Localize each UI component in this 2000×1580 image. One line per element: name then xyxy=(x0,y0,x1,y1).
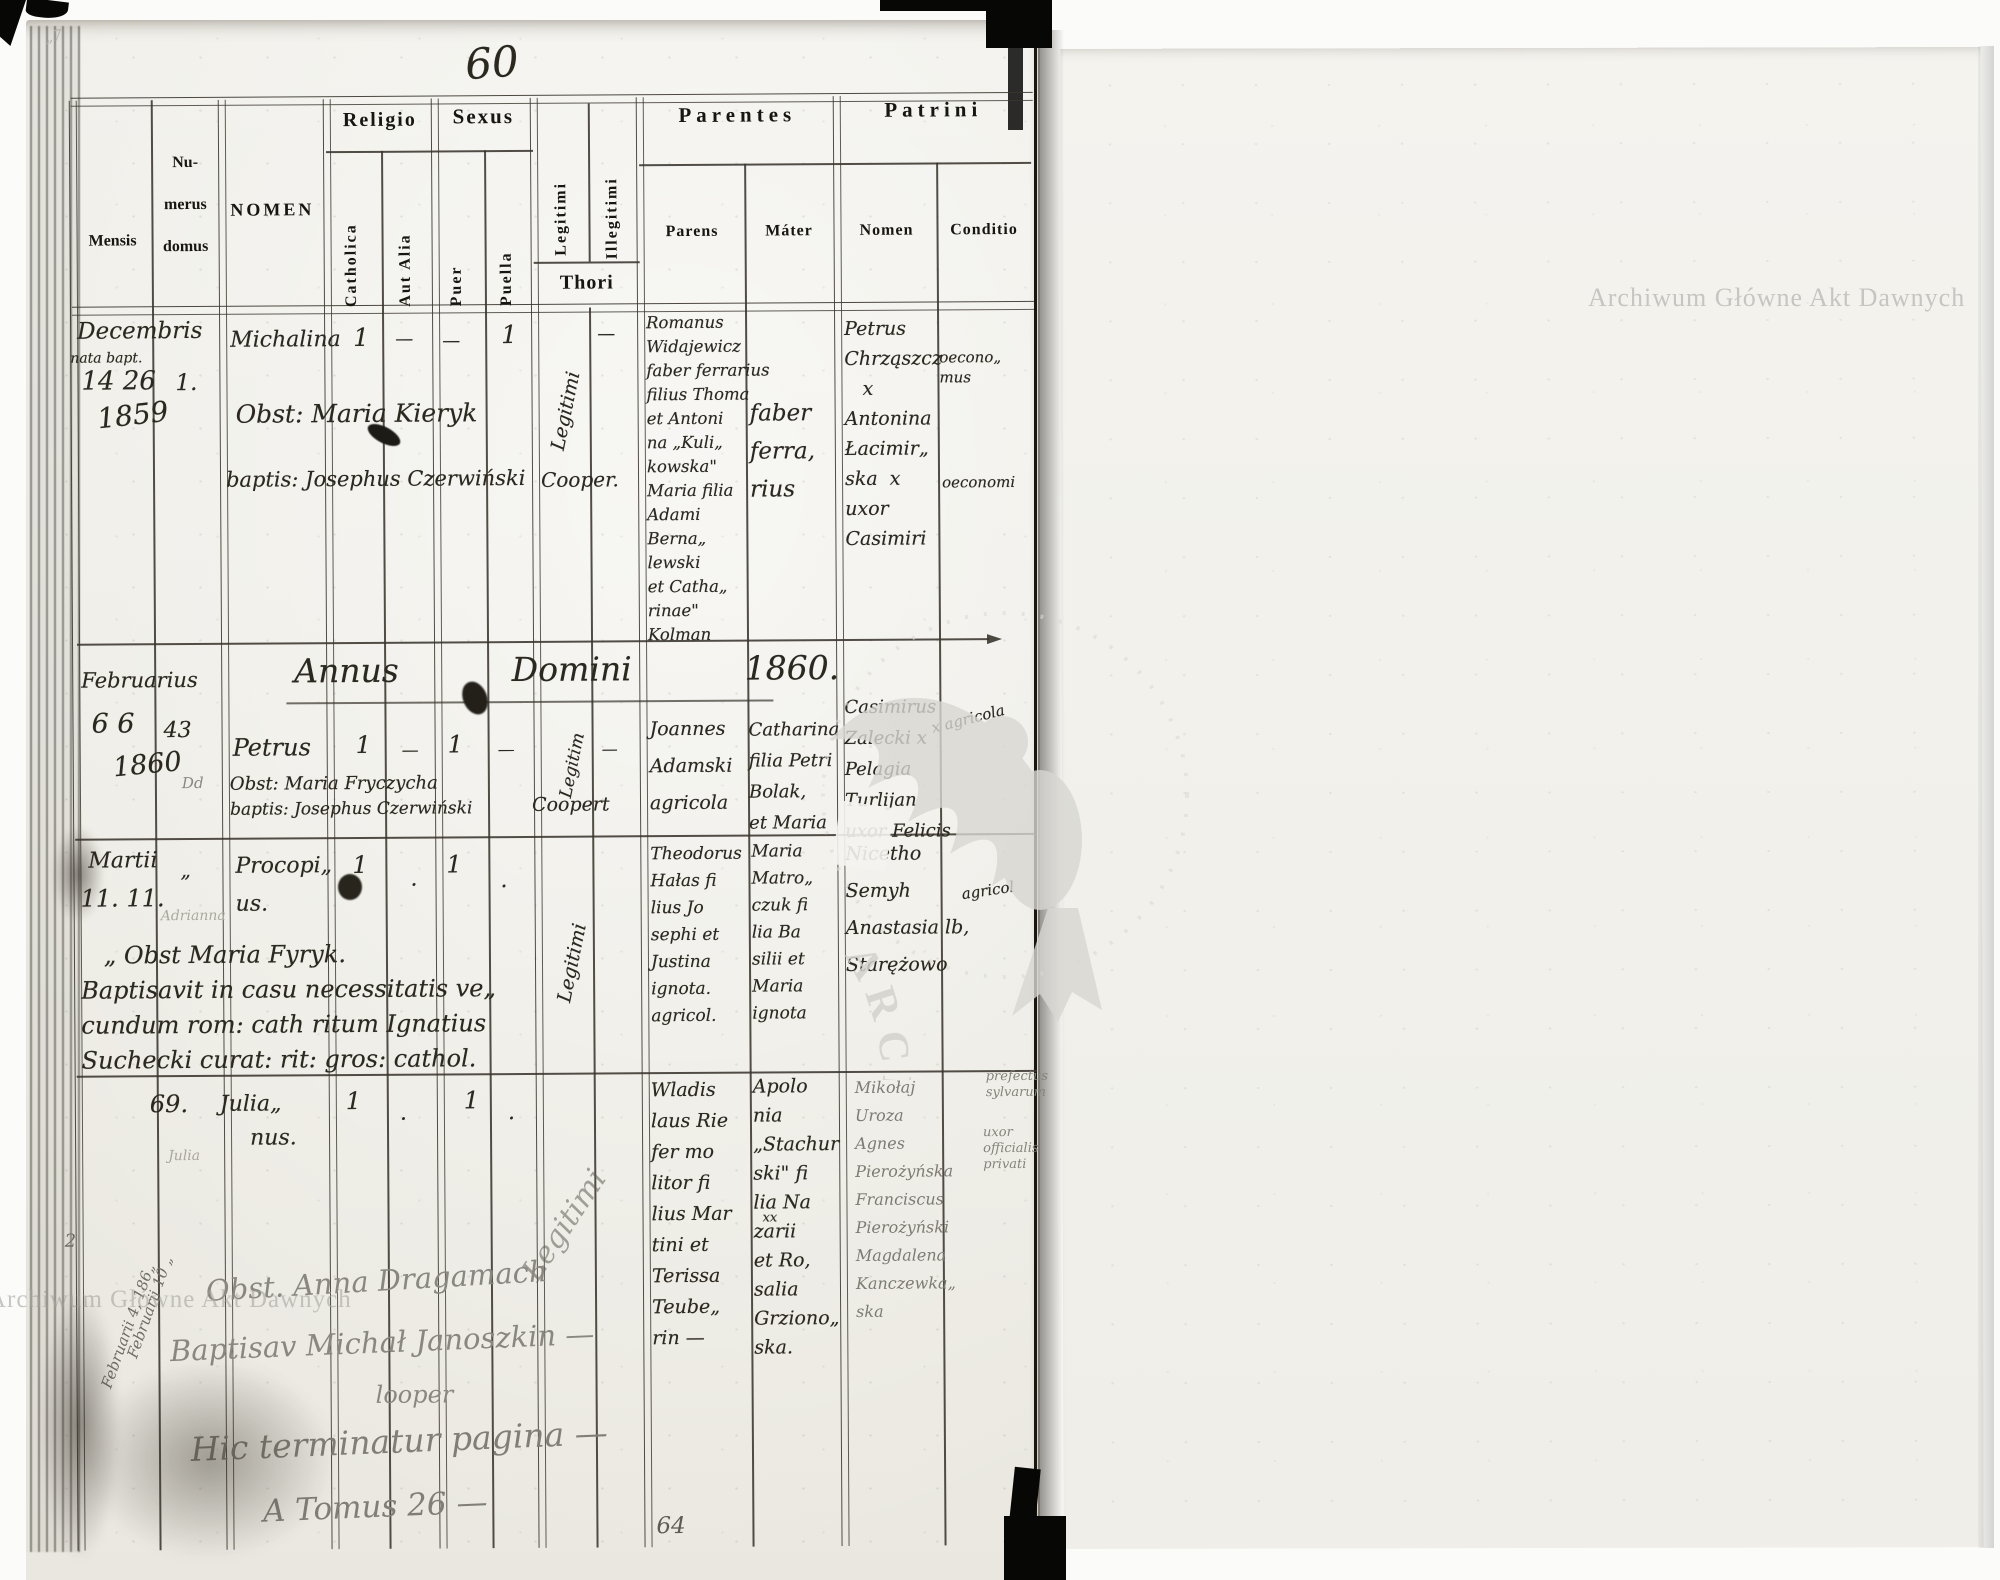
entry-parens: Wladis laus Rie fer mo litor fi lius Mar… xyxy=(651,1075,733,1354)
header-catholica: Catholica xyxy=(342,159,361,307)
archive-watermark-top: Archiwum Główne Akt Dawnych xyxy=(1588,283,1965,313)
entry-puer: 1 xyxy=(448,730,463,758)
entry-month: Februarius xyxy=(81,668,198,693)
entry-aut-alia: . xyxy=(400,1101,407,1126)
column-rule xyxy=(588,104,591,262)
entry-catholica: 1 xyxy=(356,731,371,759)
footer-title: looper xyxy=(376,1380,454,1408)
entry-baptizer: baptis: Josephus Czerwiński xyxy=(230,798,472,819)
svg-text:ARCHIWUM GŁÓWNE • AKT DAWNYCH: ARCHIWUM GŁÓWNE • AKT DAWNYCH • xyxy=(740,817,920,1080)
header-parens: Parens xyxy=(639,223,744,242)
header-religio: Religio xyxy=(326,109,434,133)
header-patrini-nomen: Nomen xyxy=(836,221,936,240)
entry-midwife: Obst: Maria Kieryk xyxy=(236,398,478,428)
entry-mater: faber ferra, rius xyxy=(750,394,816,508)
header-aut-alia: Aut Alia xyxy=(396,193,415,307)
entry-month: Martii xyxy=(88,848,157,873)
entry-patrini: Mikołaj Uroza Agnes Pierożyńska Francisc… xyxy=(855,1073,956,1326)
paper-patch xyxy=(832,801,894,872)
entry-puer: — xyxy=(442,330,460,351)
entry-aut-alia: — xyxy=(395,329,413,350)
entry-thori: Legitim xyxy=(556,731,589,800)
entry-conditio: oeconomi xyxy=(942,473,1015,491)
header-illegitimi: Illegitimi xyxy=(603,109,622,259)
entry-parens: Joannes Adamski agricola xyxy=(649,711,732,823)
entry-conditio: uxor officialis privati xyxy=(983,1125,1039,1173)
entry-month-note: nata bapt. xyxy=(70,350,142,366)
entry-pencil-note: Adrianna xyxy=(161,908,226,924)
entry-puella: . xyxy=(500,868,507,893)
stamp-arc-text: ARCHIWUM GŁÓWNE • AKT DAWNYCH • xyxy=(740,817,920,1080)
row-rule xyxy=(326,150,533,153)
header-puer: Puer xyxy=(448,228,466,306)
header-conditio: Conditio xyxy=(936,221,1031,240)
entry-marginal-note: „ Obst Maria Fyryk. Baptisavit in casu n… xyxy=(81,936,497,1079)
header-sexus: Sexus xyxy=(434,104,533,130)
entry-catholica: 1 xyxy=(353,323,369,352)
header-parentes: Parentes xyxy=(639,102,836,128)
entry-puella: 1 xyxy=(501,320,517,349)
entry-midwife: Obst: Maria Fryczycha xyxy=(230,773,438,795)
entry-catholica: 1 xyxy=(346,1087,361,1115)
header-nomen: NOMEN xyxy=(221,199,323,221)
underline-rule xyxy=(286,699,773,704)
entry-name: Procopi„ us. xyxy=(235,847,332,924)
entry-name: Julia„ xyxy=(220,1091,282,1116)
entry-days: 6 6 xyxy=(91,708,134,739)
entry-house-note: Dd xyxy=(182,774,204,792)
corner-pencil-mark: „7 xyxy=(43,26,63,47)
entry-puer: 1 xyxy=(446,850,461,878)
entry-mater-mark: xx xyxy=(763,1210,778,1225)
footer-tomus-line: A Tomus 26 — xyxy=(262,1484,488,1529)
archive-stamp-icon: ARCHIWUM GŁÓWNE • AKT DAWNYCH • xyxy=(740,510,1270,1080)
entry-conditio: oecono„ mus xyxy=(939,347,1001,387)
header-mensis: Mensis xyxy=(77,232,149,250)
header-legitimi: Legitimi xyxy=(552,116,571,256)
header-patrini: Patrini xyxy=(836,97,1031,123)
scanned-register-spread: Archiwum Główne Akt Dawnych Archiwum Głó… xyxy=(0,0,2000,1580)
entry-margin-number: 2 xyxy=(65,1231,77,1252)
header-mater: Máter xyxy=(744,222,833,241)
entry-parens: Theodorus Hałas fi lius Jo sephi et Just… xyxy=(650,841,743,1031)
entry-thori: Legitimi xyxy=(553,922,591,1005)
header-numerus-domus: Nu- merus domus xyxy=(153,142,218,268)
entry-month: Decembris xyxy=(77,318,202,345)
entry-name-cont: nus. xyxy=(250,1125,297,1150)
entry-illegitimi: — xyxy=(602,739,618,758)
header-thori: Thori xyxy=(534,271,640,295)
entry-house: 1. xyxy=(175,370,197,396)
row-rule xyxy=(534,261,640,263)
archive-watermark-bottom: Archiwum Główne Akt Dawnych xyxy=(0,1286,352,1314)
entry-year: 1859 xyxy=(96,395,170,436)
entry-name: Petrus xyxy=(233,733,311,761)
entry-year: 1860 xyxy=(112,746,183,783)
entry-pencil-note: Julia xyxy=(168,1148,200,1164)
entry-days: 14 26 xyxy=(81,366,156,396)
header-puella: Puella xyxy=(497,206,516,306)
entry-ditto-mark: „ xyxy=(180,858,191,882)
entry-house: 69. xyxy=(150,1090,188,1118)
entry-puer: 1 xyxy=(464,1086,479,1114)
entry-illegitimi: — xyxy=(597,323,615,344)
entry-aut-alia: . xyxy=(410,867,417,892)
entry-thori: Legitimi xyxy=(547,370,585,453)
entry-puella: . xyxy=(508,1100,515,1125)
page-number-top: 60 xyxy=(463,36,520,89)
entry-house: 43 xyxy=(163,718,191,743)
entry-puella: — xyxy=(498,740,515,760)
entry-aut-alia: — xyxy=(402,741,419,761)
entry-baptizer: baptis: Josephus Czerwiński xyxy=(226,466,525,492)
entry-name: Michalina xyxy=(230,327,341,353)
entry-catholica: 1 xyxy=(352,851,367,879)
page-number-bottom: 64 xyxy=(656,1513,685,1539)
entry-days: 11. 11. xyxy=(81,884,165,913)
entry-baptizer-title: Cooper. xyxy=(541,467,619,491)
